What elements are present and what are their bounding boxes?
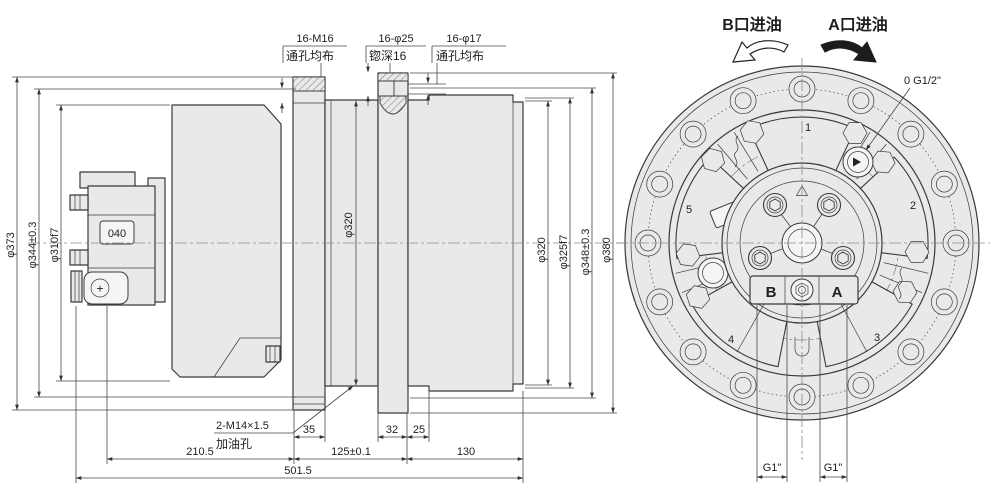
segment-label-1: 1 [805, 122, 811, 134]
bolt-hole [730, 88, 756, 114]
dim-phi373: φ373 [5, 232, 17, 258]
callout-through-line2: 通孔均布 [436, 49, 484, 63]
dim-125: 125±0.1 [331, 446, 371, 458]
rotation-a-label: A口进油 [828, 15, 888, 34]
bolt-hole [647, 289, 673, 315]
dim-phi348: φ348±0.3 [580, 229, 592, 276]
dim-501-5: 501.5 [284, 465, 312, 477]
segment-label-4: 4 [728, 334, 734, 346]
callout-thread-line1: 16-M16 [296, 33, 333, 45]
bolt-hole [680, 121, 706, 147]
segment-label-5: 5 [686, 204, 692, 216]
drain-screw [266, 346, 280, 362]
callout-thread-line2: 通孔均布 [286, 49, 334, 63]
callout-counterbore-line1: 16-φ25 [378, 33, 413, 45]
oil-callout-line1: 2-M14×1.5 [216, 420, 269, 432]
segment-label-2: 2 [910, 200, 916, 212]
oil-callout-line2: 加油孔 [216, 437, 252, 451]
dim-g1-b: G1" [763, 462, 782, 474]
callout-counterbore-line2: 锪深16 [369, 48, 407, 63]
bell-housing [172, 105, 281, 377]
dim-210-5: 210.5 [186, 446, 214, 458]
dim-g1-a: G1" [824, 462, 843, 474]
dim-35: 35 [303, 424, 315, 436]
bolt-hole [730, 372, 756, 398]
drain-port [698, 258, 728, 288]
bolt-hole [680, 339, 706, 365]
bolt-hole [931, 289, 957, 315]
bolt-hole [931, 171, 957, 197]
rear-flange-hatch [378, 73, 408, 81]
front-flange-hatch [293, 77, 325, 91]
bolt-hole [848, 88, 874, 114]
dim-bore-phi320: φ320 [343, 212, 355, 238]
bolt-hole [848, 372, 874, 398]
technical-drawing-svg: 040 + [0, 0, 992, 496]
dim-phi325: φ325f7 [558, 235, 570, 270]
callout-through-line1: 16-φ17 [446, 33, 481, 45]
plus-label: + [96, 282, 103, 296]
plus-plate [84, 272, 128, 304]
gauge-port [843, 147, 873, 177]
bolt-hole [898, 121, 924, 147]
segment-label-3: 3 [874, 332, 880, 344]
dim-25: 25 [413, 424, 425, 436]
port-b-letter: B [766, 284, 777, 301]
bolt-hole [898, 339, 924, 365]
dim-phi320: φ320 [536, 237, 548, 263]
dim-130: 130 [457, 446, 475, 458]
hydraulic-motor-drawing: 040 + [0, 0, 992, 496]
dim-phi344: φ344±0.3 [27, 222, 39, 269]
port-a-letter: A [832, 284, 843, 301]
front-flange [293, 77, 325, 410]
gauge-port-label: 0 G1/2" [904, 75, 941, 87]
dim-phi310: φ310f7 [49, 228, 61, 263]
dim-phi380: φ380 [601, 237, 613, 263]
bolt-hole [647, 171, 673, 197]
model-label: 040 [108, 228, 126, 240]
rotation-b-label: B口进油 [722, 15, 782, 34]
dim-32: 32 [386, 424, 398, 436]
